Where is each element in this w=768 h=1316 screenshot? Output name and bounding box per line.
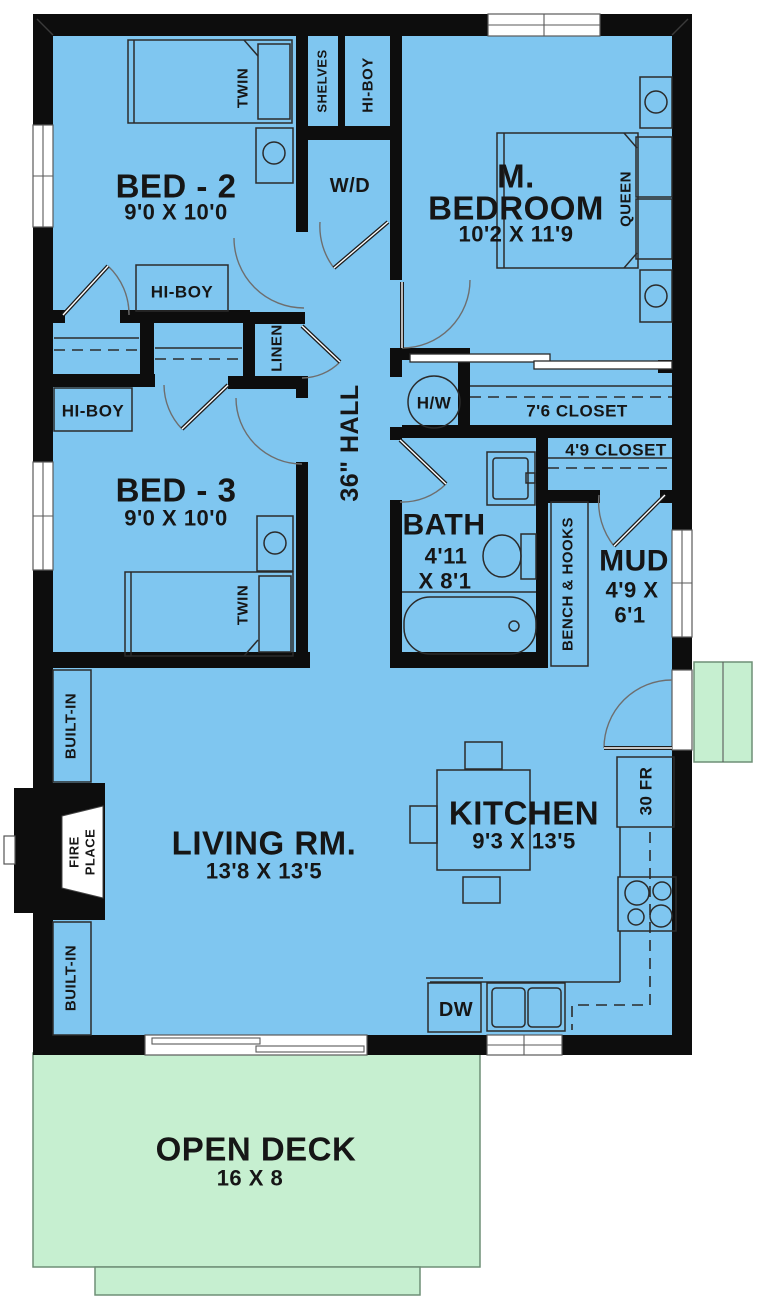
room-dims-bath-1: 4'11	[425, 544, 468, 569]
patio-sliding-door	[145, 1035, 367, 1055]
label-twin-bed2: TWIN	[235, 68, 252, 108]
label-fridge: 30 FR	[637, 767, 656, 816]
deck-step	[95, 1267, 420, 1295]
label-hot-water: H/W	[417, 394, 452, 413]
room-label-living: LIVING RM.	[172, 825, 357, 862]
label-shelves: SHELVES	[315, 49, 330, 112]
room-label-mud: MUD	[599, 545, 669, 578]
window-bed3-left	[33, 462, 53, 570]
room-dims-bath-2: X 8'1	[419, 569, 472, 594]
window-kitchen-bottom	[487, 1035, 562, 1055]
floor-plan-drawing: BED - 2 9'0 X 10'0 TWIN SHELVES HI-BOY H…	[0, 0, 768, 1316]
room-dims-deck: 16 X 8	[217, 1166, 284, 1191]
label-hiboy-bed2: HI-BOY	[151, 283, 214, 302]
label-twin-bed3: TWIN	[235, 585, 252, 625]
label-fireplace-1: FIRE	[67, 836, 82, 868]
fireplace-exterior-mass	[14, 788, 54, 913]
master-closet-bypass-door-2	[534, 361, 672, 369]
room-dims-living: 13'8 X 13'5	[206, 859, 322, 884]
room-dims-mud-2: 6'1	[614, 603, 645, 628]
room-label-bath: BATH	[402, 509, 485, 542]
back-door-opening	[672, 670, 692, 750]
label-closet-76: 7'6 CLOSET	[526, 402, 628, 421]
fireplace-flue-stub	[4, 836, 15, 864]
label-builtin-bottom: BUILT-IN	[63, 945, 80, 1011]
room-dims-mud-1: 4'9 X	[606, 578, 659, 603]
label-queen: QUEEN	[618, 171, 635, 227]
room-dims-master: 10'2 X 11'9	[458, 222, 573, 247]
label-dishwasher: DW	[439, 999, 473, 1021]
room-dims-bed3: 9'0 X 10'0	[124, 506, 228, 531]
label-washer-dryer: W/D	[330, 175, 370, 197]
label-hall: 36" HALL	[336, 384, 364, 501]
window-mud-right	[672, 530, 692, 637]
back-steps	[694, 662, 752, 762]
master-closet-bypass-door-1	[410, 354, 550, 362]
label-hiboy-strip: HI-BOY	[360, 57, 377, 113]
label-closet-49: 4'9 CLOSET	[565, 441, 667, 460]
window-master-top	[488, 14, 600, 36]
room-label-deck: OPEN DECK	[156, 1131, 357, 1168]
label-builtin-top: BUILT-IN	[63, 693, 80, 759]
floor-plan-page: BED - 2 9'0 X 10'0 TWIN SHELVES HI-BOY H…	[0, 0, 768, 1316]
label-linen: LINEN	[269, 324, 286, 372]
label-fireplace-2: PLACE	[83, 829, 98, 876]
window-bed2-left	[33, 125, 53, 227]
room-dims-bed2: 9'0 X 10'0	[124, 200, 228, 225]
room-label-bed3: BED - 3	[116, 472, 237, 509]
label-hiboy-bed3: HI-BOY	[62, 402, 125, 421]
room-label-kitchen: KITCHEN	[449, 795, 599, 832]
room-dims-kitchen: 9'3 X 13'5	[472, 829, 576, 854]
label-bench-hooks: BENCH & HOOKS	[560, 517, 577, 651]
